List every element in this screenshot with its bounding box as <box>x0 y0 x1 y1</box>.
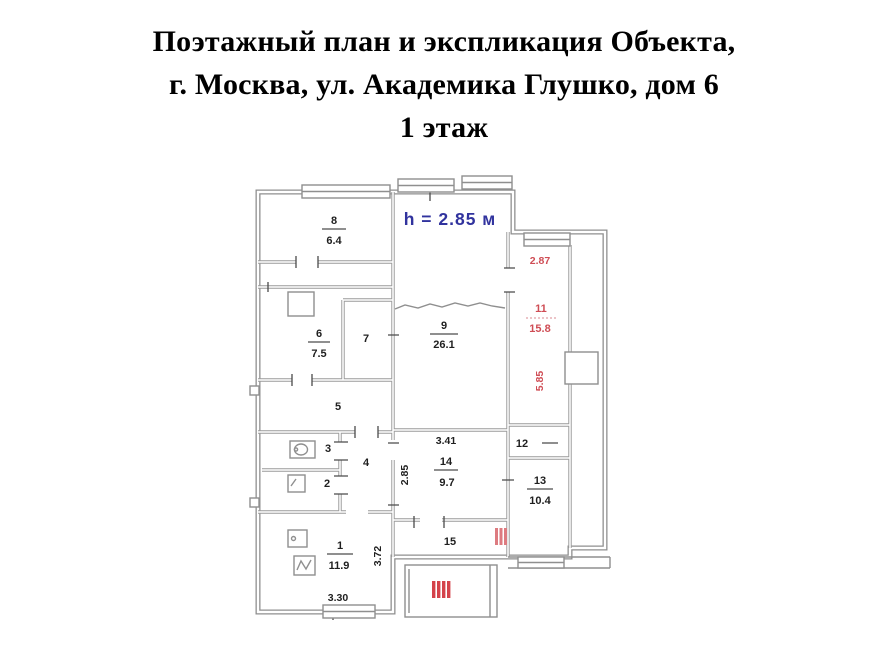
duct-shaft <box>288 292 314 316</box>
stove-icon <box>288 530 307 547</box>
room-12-number: 12 <box>516 438 528 450</box>
ceiling-height-note: h = 2.85 м <box>404 209 497 229</box>
room-1-number: 1 <box>337 540 343 552</box>
balcony <box>405 565 497 617</box>
room-14-depth-dim: 2.85 <box>399 465 411 486</box>
corridor-extension <box>508 557 610 568</box>
floor-plan: h = 2.85 м 8 6.4 6 7.5 7 5 9 26.1 3 2 4 … <box>238 158 652 642</box>
room-7-number: 7 <box>363 333 369 345</box>
room-14-width-dim: 3.41 <box>436 435 457 447</box>
room-8-number: 8 <box>331 215 337 227</box>
room-11-depth-dim: 5.85 <box>534 371 546 392</box>
room-13-area: 10.4 <box>529 495 551 507</box>
page-title-line-2: г. Москва, ул. Академика Глушко, дом 6 <box>0 63 888 106</box>
room-6-number: 6 <box>316 328 322 340</box>
scanned-page: Поэтажный план и экспликация Объекта, г.… <box>0 0 888 666</box>
room-1-area: 11.9 <box>329 560 350 572</box>
room-9-area: 26.1 <box>433 339 454 351</box>
page-title-line-1: Поэтажный план и экспликация Объекта, <box>0 20 888 63</box>
room-1-depth-dim: 3.72 <box>372 546 384 567</box>
outer-walls <box>258 192 605 612</box>
vent-hatch-room15 <box>495 528 507 545</box>
room-1-width-dim: 3.30 <box>328 592 349 604</box>
room-3-number: 3 <box>325 443 331 455</box>
room-11-width-dim: 2.87 <box>530 255 551 267</box>
wall-vent-upper <box>250 386 259 395</box>
room-8-area: 6.4 <box>326 235 342 247</box>
page-title: Поэтажный план и экспликация Объекта, г.… <box>0 20 888 149</box>
wall-vent-lower <box>250 498 259 507</box>
room-11-number: 11 <box>535 303 547 315</box>
room-13-number: 13 <box>534 475 546 487</box>
room-14-area: 9.7 <box>439 477 454 489</box>
sink-icon <box>288 475 305 492</box>
room-14-number: 14 <box>440 456 453 468</box>
toilet-icon <box>290 441 315 458</box>
room-6-area: 7.5 <box>311 348 326 360</box>
page-title-line-3: 1 этаж <box>0 106 888 149</box>
room-11-area: 15.8 <box>529 323 550 335</box>
room-15-number: 15 <box>444 536 456 548</box>
closet-box <box>565 352 598 384</box>
room-4-number: 4 <box>363 457 370 469</box>
room-2-number: 2 <box>324 478 330 490</box>
washer-icon <box>294 556 315 575</box>
floor-plan-drawing: h = 2.85 м 8 6.4 6 7.5 7 5 9 26.1 3 2 4 … <box>238 158 652 642</box>
room-9-number: 9 <box>441 320 447 332</box>
room-5-number: 5 <box>335 401 341 413</box>
